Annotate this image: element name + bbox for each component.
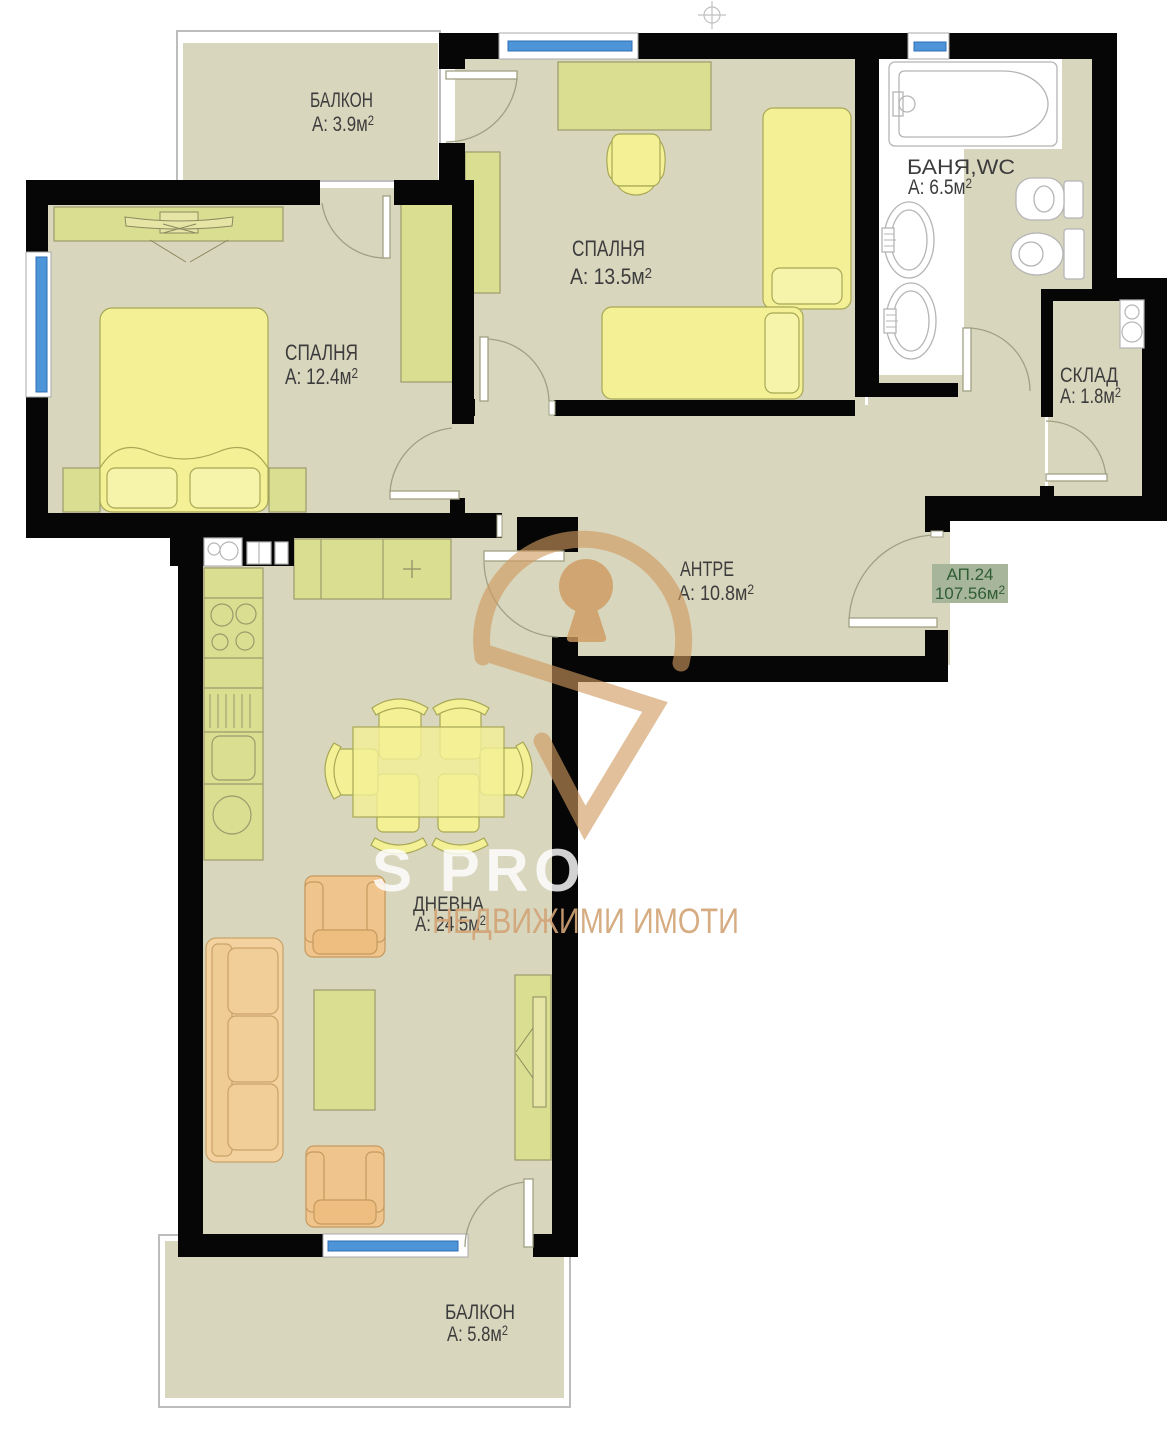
svg-text:БАЛКОН: БАЛКОН xyxy=(445,1301,515,1324)
svg-text:СПАЛНЯ: СПАЛНЯ xyxy=(285,340,358,365)
svg-text:СКЛАД: СКЛАД xyxy=(1060,364,1118,387)
svg-text:A: 12.4м2: A: 12.4м2 xyxy=(285,364,358,389)
svg-text:АНТРЕ: АНТРЕ xyxy=(680,558,734,581)
svg-text:БАЛКОН: БАЛКОН xyxy=(310,89,373,112)
svg-text:A: 3.9м2: A: 3.9м2 xyxy=(312,112,374,136)
svg-text:107.56м2: 107.56м2 xyxy=(935,583,1006,603)
svg-text:НЕДВИЖИМИ ИМОТИ: НЕДВИЖИМИ ИМОТИ xyxy=(432,902,739,941)
svg-text:S PROPERTIES: S PROPERTIES xyxy=(372,837,881,904)
svg-text:A: 10.8м2: A: 10.8м2 xyxy=(678,581,754,605)
svg-text:A: 5.8м2: A: 5.8м2 xyxy=(447,1322,508,1346)
svg-text:A: 1.8м2: A: 1.8м2 xyxy=(1060,384,1121,408)
svg-text:СПАЛНЯ: СПАЛНЯ xyxy=(572,236,645,261)
svg-text:A: 13.5м2: A: 13.5м2 xyxy=(570,264,652,289)
svg-text:A: 6.5м2: A: 6.5м2 xyxy=(908,175,972,199)
svg-text:АП.24: АП.24 xyxy=(947,565,994,584)
